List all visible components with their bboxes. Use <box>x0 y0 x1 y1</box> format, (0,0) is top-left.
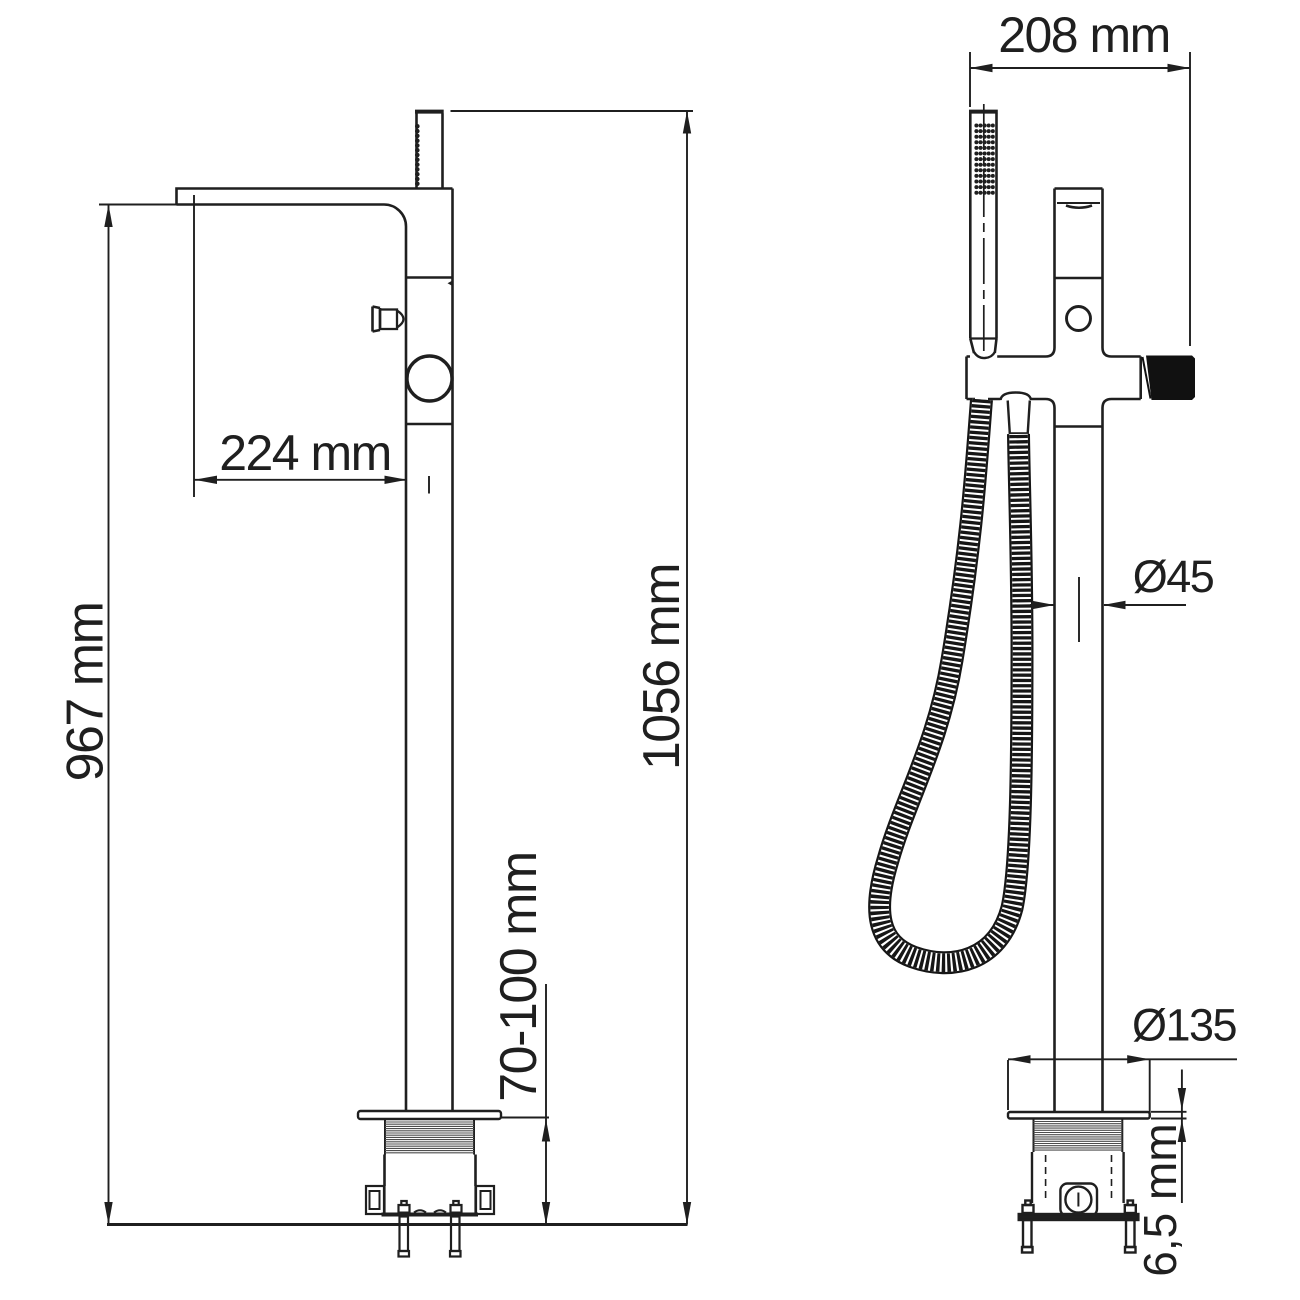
svg-text:Ø135: Ø135 <box>1132 1000 1237 1051</box>
svg-text:1056 mm: 1056 mm <box>633 564 691 770</box>
svg-text:Ø45: Ø45 <box>1133 551 1214 602</box>
svg-text:6,5 mm: 6,5 mm <box>1134 1123 1186 1276</box>
svg-text:208 mm: 208 mm <box>998 7 1170 63</box>
svg-text:70-100 mm: 70-100 mm <box>490 852 548 1102</box>
svg-text:967 mm: 967 mm <box>57 603 115 782</box>
svg-text:224 mm: 224 mm <box>219 425 391 481</box>
